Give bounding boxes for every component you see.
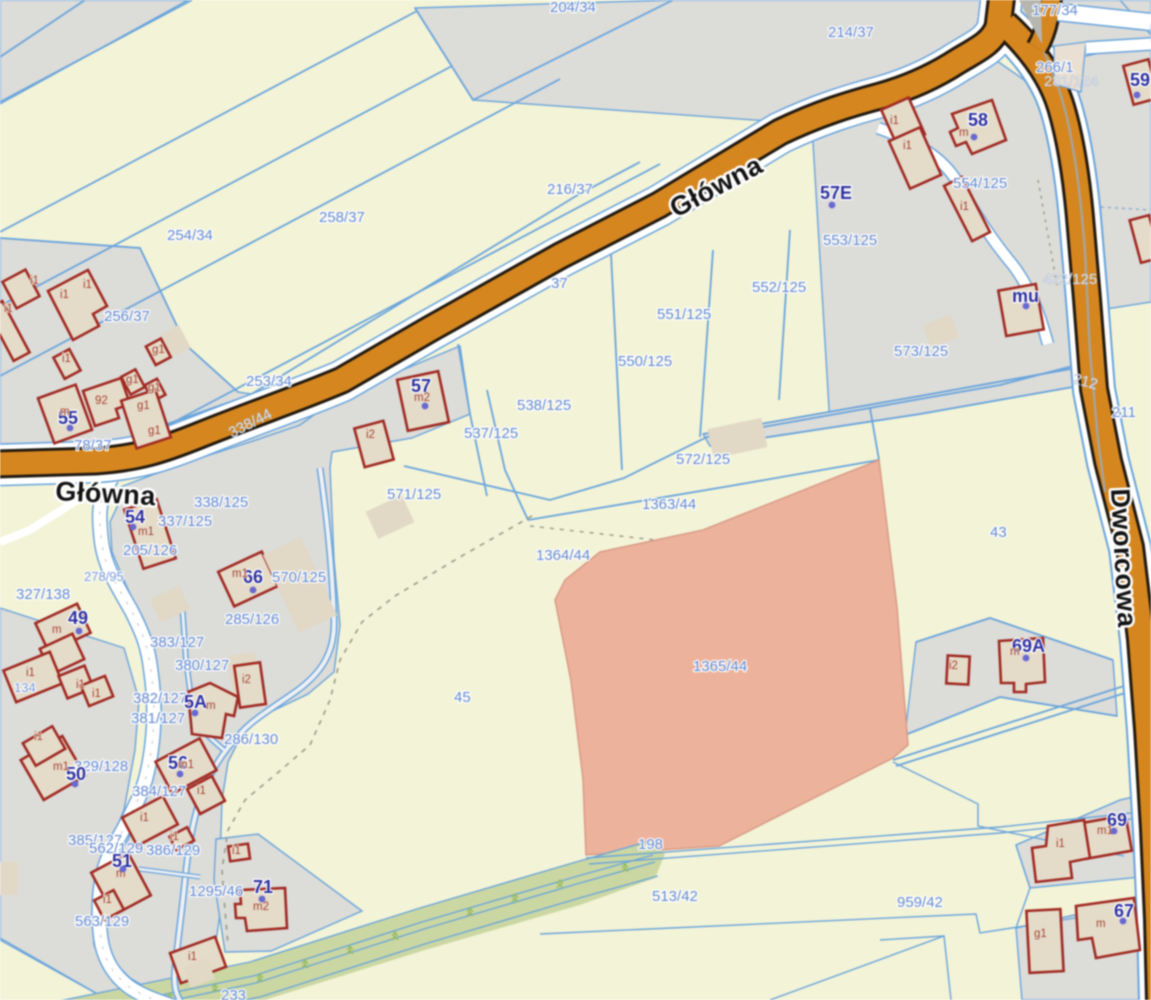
svg-text:1364/44: 1364/44 [536,547,590,564]
svg-text:i1: i1 [30,275,39,287]
svg-text:54: 54 [125,507,145,527]
svg-text:g1: g1 [148,425,161,437]
svg-text:i1: i1 [92,688,101,700]
svg-text:g1: g1 [126,374,139,386]
svg-text:537/125: 537/125 [464,425,518,442]
svg-text:278/95: 278/95 [84,569,124,584]
svg-text:266/1: 266/1 [1036,59,1074,76]
svg-text:i1: i1 [76,679,85,691]
svg-text:m: m [52,624,62,636]
svg-text:i1: i1 [960,201,969,213]
svg-text:1365/44: 1365/44 [693,658,747,675]
svg-text:g1: g1 [148,382,161,394]
svg-text:i1: i1 [903,140,912,152]
svg-text:i2: i2 [242,674,251,686]
svg-text:i1: i1 [140,812,149,824]
svg-text:57E: 57E [820,183,852,203]
svg-text:286/130: 286/130 [224,731,278,748]
svg-text:i1: i1 [890,115,899,127]
svg-text:254/34: 254/34 [167,227,213,244]
svg-text:177/34: 177/34 [1032,2,1078,19]
svg-text:i1: i1 [60,289,69,301]
svg-text:i2: i2 [949,660,958,672]
svg-text:134: 134 [14,680,36,695]
svg-text:g1: g1 [137,400,150,412]
svg-text:256/37: 256/37 [104,308,150,325]
svg-text:338/125: 338/125 [194,494,248,511]
svg-text:i1: i1 [34,731,43,743]
svg-text:253/34: 253/34 [246,373,292,390]
svg-text:538/125: 538/125 [517,397,571,414]
svg-text:554/125: 554/125 [953,175,1007,192]
svg-text:45: 45 [454,689,471,706]
svg-text:g1: g1 [1034,928,1047,940]
svg-text:563/129: 563/129 [75,913,129,930]
svg-text:381/127: 381/127 [131,710,185,727]
svg-text:i1: i1 [26,667,35,679]
svg-text:i1: i1 [62,353,71,365]
svg-text:382/127: 382/127 [133,690,187,707]
svg-text:337/125: 337/125 [158,513,212,530]
svg-text:422/125: 422/125 [1043,271,1097,288]
svg-text:Główna: Główna [55,476,157,511]
svg-text:573/125: 573/125 [894,343,948,360]
svg-text:37: 37 [551,275,568,292]
svg-text:59: 59 [1130,70,1150,90]
svg-text:513/42: 513/42 [652,888,698,905]
svg-text:1363/44: 1363/44 [642,496,696,513]
svg-text:216/37: 216/37 [547,181,593,198]
svg-text:m: m [60,406,70,418]
svg-text:43: 43 [990,524,1007,541]
svg-text:553/125: 553/125 [823,232,877,249]
svg-text:384/127: 384/127 [132,783,186,800]
svg-text:204/34: 204/34 [550,0,596,16]
svg-text:258/37: 258/37 [319,209,365,226]
svg-text:570/125: 570/125 [272,569,326,586]
svg-text:m: m [1010,646,1020,658]
svg-text:m: m [959,127,969,139]
svg-text:552/125: 552/125 [752,279,806,296]
svg-text:i1: i1 [83,279,92,291]
svg-text:i1: i1 [103,894,112,906]
svg-text:i1: i1 [170,831,179,843]
svg-text:i1: i1 [4,303,13,315]
svg-text:m2: m2 [414,392,430,404]
svg-text:m: m [1096,918,1106,930]
svg-text:i2: i2 [366,429,375,441]
svg-text:214/37: 214/37 [828,24,874,41]
svg-text:m1: m1 [232,568,248,580]
svg-text:1295/46: 1295/46 [189,883,243,900]
svg-text:m1: m1 [53,761,69,773]
svg-text:m1: m1 [1097,825,1113,837]
svg-text:205/126: 205/126 [123,542,177,559]
svg-text:78/37: 78/37 [74,437,112,454]
svg-text:58: 58 [968,110,988,130]
svg-text:380/127: 380/127 [175,657,229,674]
svg-text:5A: 5A [184,692,207,712]
svg-text:572/125: 572/125 [676,451,730,468]
svg-text:386/129: 386/129 [146,842,200,859]
svg-text:m2: m2 [253,901,269,913]
svg-text:233: 233 [221,987,246,1000]
svg-text:49: 49 [68,608,88,628]
svg-text:i1: i1 [197,785,206,797]
svg-text:959/42: 959/42 [897,894,943,911]
svg-text:i1: i1 [232,845,241,857]
svg-text:571/125: 571/125 [387,486,441,503]
svg-text:198: 198 [638,836,663,853]
svg-text:550/125: 550/125 [618,353,672,370]
svg-text:g1: g1 [152,344,165,356]
svg-text:m: m [206,700,216,712]
svg-text:551/125: 551/125 [657,306,711,323]
svg-text:i1: i1 [188,951,197,963]
svg-text:285/126: 285/126 [225,611,279,628]
svg-text:383/127: 383/127 [150,634,204,651]
svg-text:92: 92 [95,395,108,407]
svg-text:327/138: 327/138 [16,586,70,603]
svg-text:211: 211 [1112,404,1136,421]
svg-text:m1: m1 [178,759,194,771]
svg-text:71: 71 [253,877,273,897]
svg-text:m1: m1 [138,526,154,538]
svg-text:i1: i1 [1056,838,1065,850]
